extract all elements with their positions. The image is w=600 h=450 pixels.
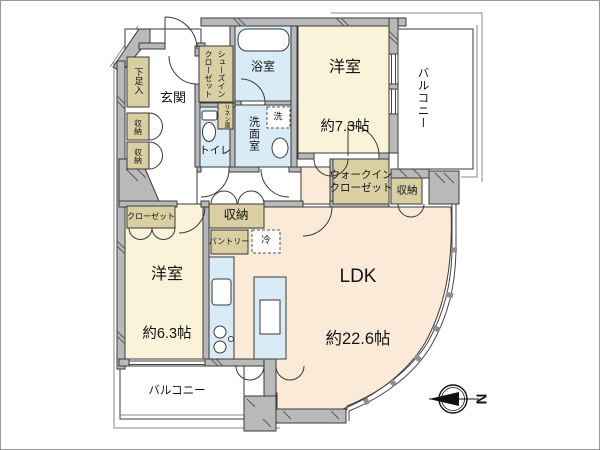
closet-box: [127, 206, 175, 228]
compass: [429, 385, 479, 413]
stove-knob: [229, 337, 234, 342]
storage-left-1-box: [127, 113, 149, 140]
storage-center-box: [209, 204, 264, 228]
shoe-box: [127, 57, 149, 107]
floorplan: 浴室 洗面室 洗 トイレ リネン庫 シューズイン クローゼット 玄関 下足入 収…: [0, 0, 600, 450]
wall-kitchen-west: [203, 207, 209, 359]
floorplan-drawing: [1, 1, 600, 450]
balcony-right-area: [398, 29, 473, 169]
storage-right-box: [391, 178, 422, 204]
fridge-box: [252, 230, 280, 253]
ldk-strip-floor: [301, 167, 330, 204]
washbasin: [272, 138, 288, 158]
pantry-box: [211, 230, 248, 254]
balcony-right-rail: [461, 25, 477, 177]
shoes-in-closet-box: [199, 46, 233, 102]
washer-box: [267, 107, 290, 128]
walk-in-closet-box: [333, 159, 389, 204]
linen-box: [218, 103, 233, 129]
toilet-bowl: [203, 123, 216, 142]
pillar-southeast: [429, 171, 459, 204]
toilet-tank: [202, 111, 217, 120]
bathtub: [238, 29, 289, 51]
stove-burner-2: [214, 341, 226, 353]
wall-top: [201, 18, 406, 26]
kitchen-sink: [212, 279, 231, 305]
bedroom1-floor: [298, 26, 389, 153]
balcony-bottom-area: [120, 366, 244, 419]
stove-burner-1: [214, 326, 226, 338]
island-sink: [260, 300, 280, 334]
storage-left-2-box: [127, 142, 149, 169]
door-stub: [264, 359, 276, 396]
